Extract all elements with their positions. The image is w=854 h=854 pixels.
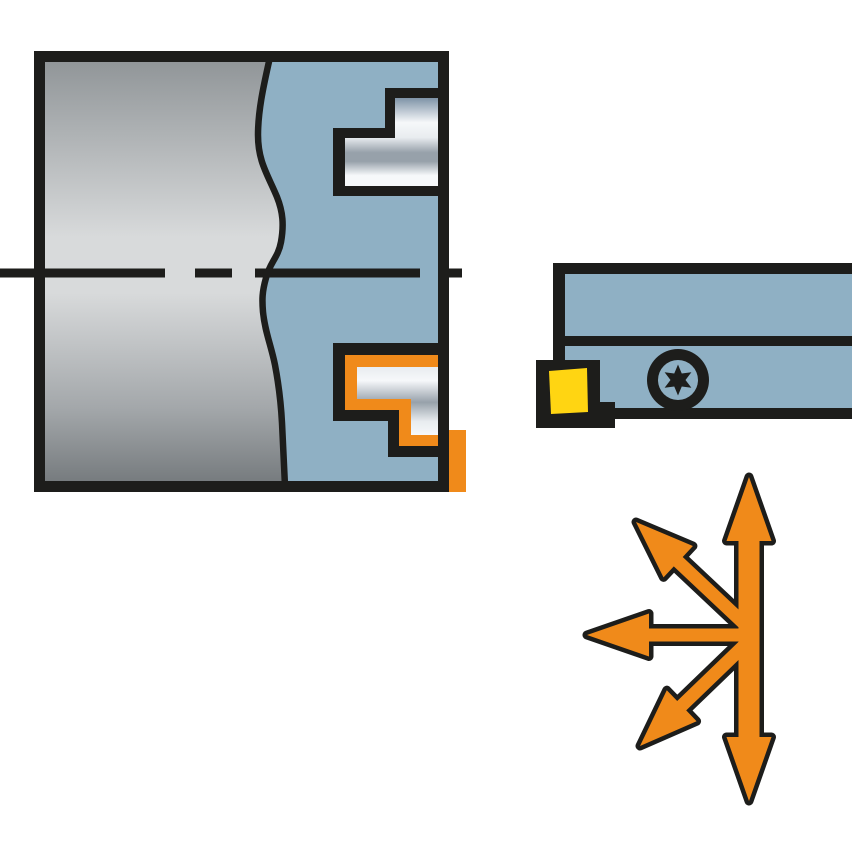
- torx-screw-icon: [647, 349, 709, 411]
- tool-holder-figure: [536, 263, 852, 428]
- workpiece-cross-section-figure: [0, 57, 466, 493]
- arrows-fill-layer: [587, 477, 772, 801]
- direction-arrows-figure: [587, 477, 772, 801]
- cutting-insert: [549, 368, 588, 414]
- illustration-canvas: [0, 0, 854, 854]
- illustration-page: [0, 0, 854, 854]
- holder-shank-upper: [565, 274, 852, 336]
- insert-tip-highlight: [449, 430, 466, 492]
